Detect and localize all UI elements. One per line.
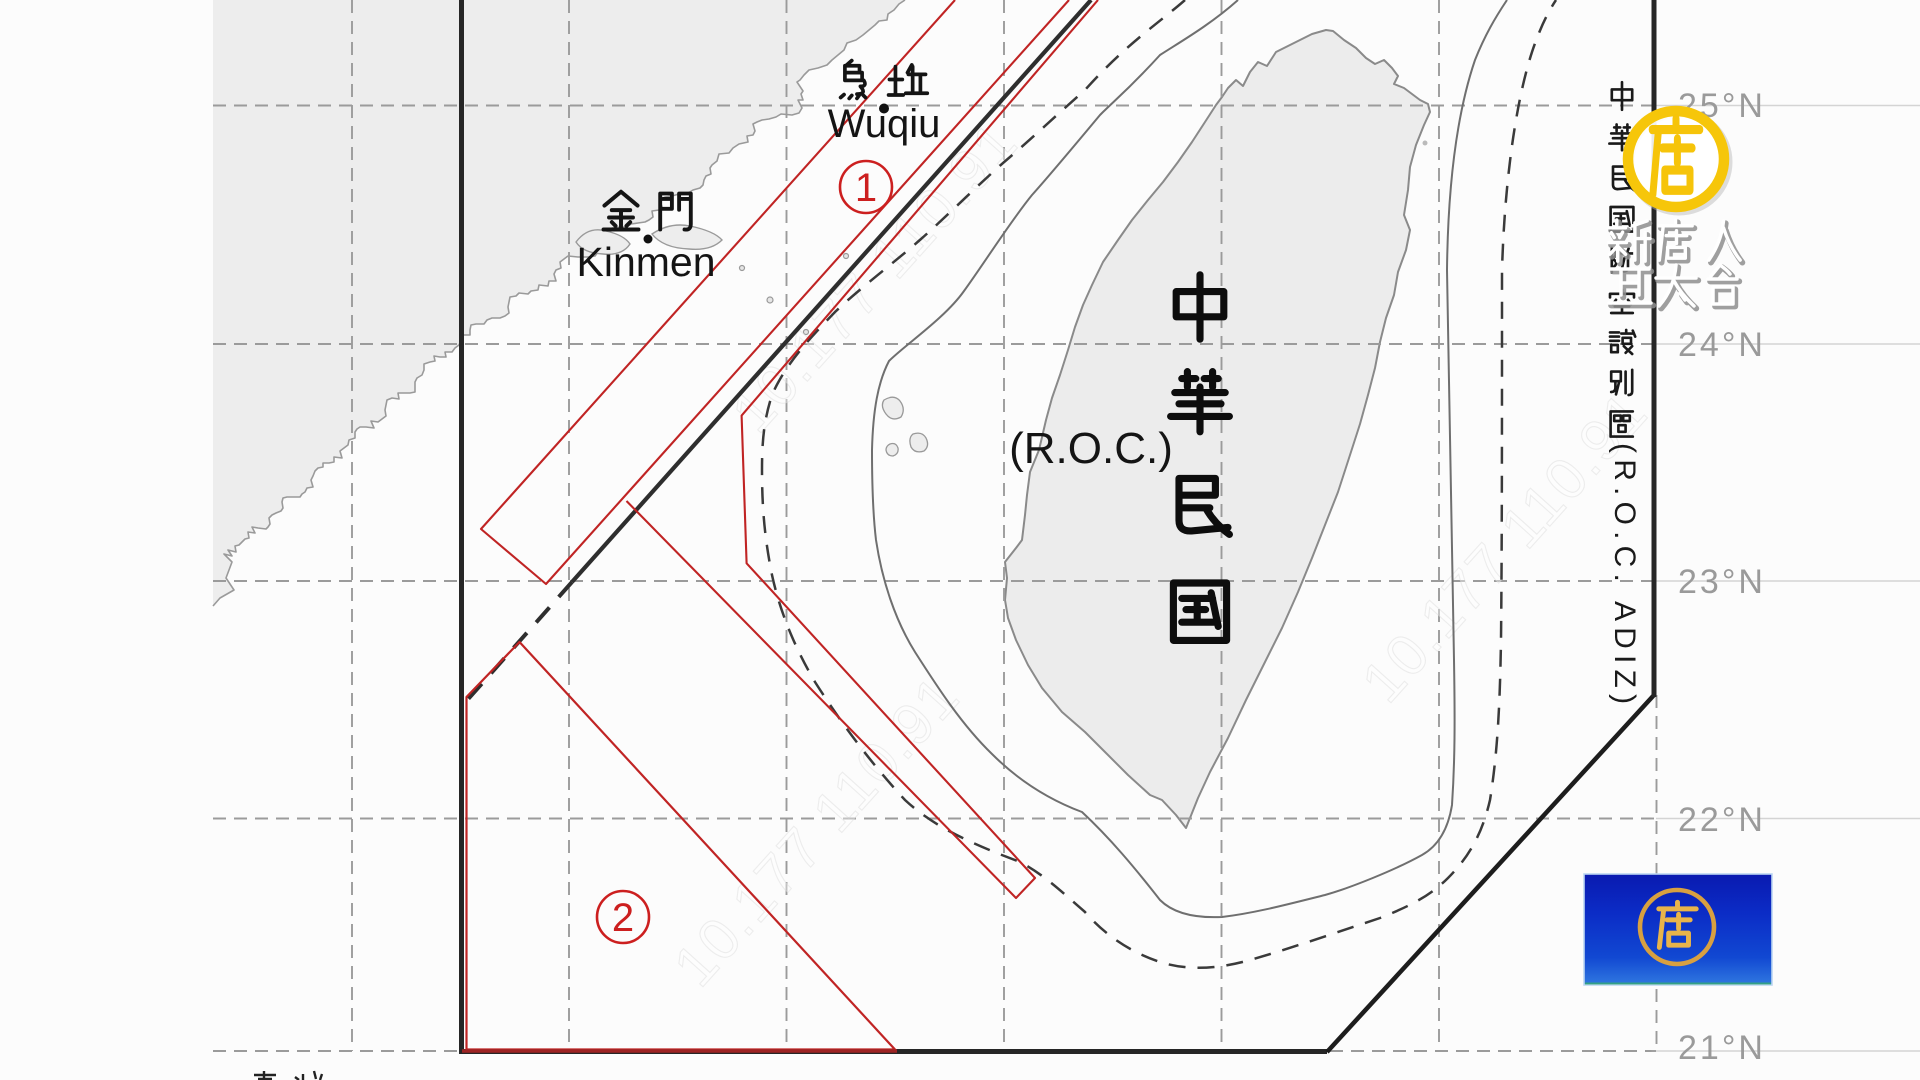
svg-text:22°N: 22°N xyxy=(1678,801,1766,839)
svg-text:21°N: 21°N xyxy=(1678,1029,1766,1067)
svg-text:(R.O.C. ADIZ): (R.O.C. ADIZ) xyxy=(1608,443,1641,710)
svg-text:(R.O.C.): (R.O.C.) xyxy=(1009,424,1173,473)
svg-text:2: 2 xyxy=(612,896,634,940)
svg-text:1: 1 xyxy=(855,166,877,210)
svg-text:24°N: 24°N xyxy=(1678,326,1766,364)
svg-text:Wuqiu: Wuqiu xyxy=(828,102,941,146)
svg-text:23°N: 23°N xyxy=(1678,563,1766,601)
svg-text:Kinmen: Kinmen xyxy=(576,239,715,285)
